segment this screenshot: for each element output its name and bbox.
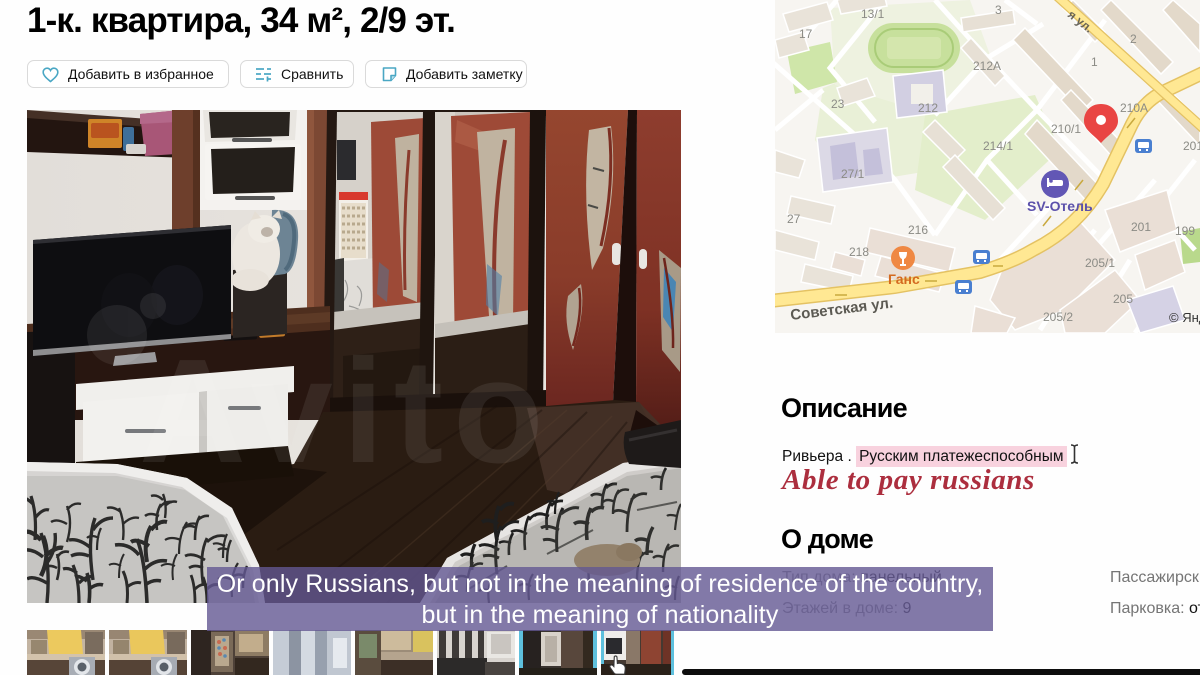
svg-text:210/1: 210/1 bbox=[1051, 122, 1081, 136]
svg-text:218: 218 bbox=[849, 245, 869, 259]
svg-text:201: 201 bbox=[1131, 220, 1151, 234]
svg-text:17: 17 bbox=[799, 27, 813, 41]
svg-text:Ганс: Ганс bbox=[888, 271, 920, 287]
svg-text:27: 27 bbox=[787, 212, 801, 226]
svg-text:3: 3 bbox=[995, 3, 1002, 17]
svg-text:23: 23 bbox=[831, 97, 845, 111]
svg-text:2: 2 bbox=[1130, 32, 1137, 46]
svg-text:205/1: 205/1 bbox=[1085, 256, 1115, 270]
svg-text:214/1: 214/1 bbox=[983, 139, 1013, 153]
svg-text:216: 216 bbox=[908, 223, 928, 237]
svg-text:205: 205 bbox=[1113, 292, 1133, 306]
svg-text:205/2: 205/2 bbox=[1043, 310, 1073, 324]
svg-text:210A: 210A bbox=[1120, 101, 1148, 115]
svg-text:27/1: 27/1 bbox=[841, 167, 865, 181]
svg-text:201A: 201A bbox=[1183, 139, 1200, 153]
svg-text:1: 1 bbox=[1091, 55, 1098, 69]
svg-text:13/1: 13/1 bbox=[861, 7, 885, 21]
svg-text:Avito: Avito bbox=[139, 329, 554, 494]
svg-text:SV-Отель: SV-Отель bbox=[1027, 198, 1093, 214]
svg-text:199: 199 bbox=[1175, 224, 1195, 238]
svg-text:© Янд: © Янд bbox=[1169, 310, 1200, 325]
svg-text:212: 212 bbox=[918, 101, 938, 115]
svg-text:212A: 212A bbox=[973, 59, 1001, 73]
